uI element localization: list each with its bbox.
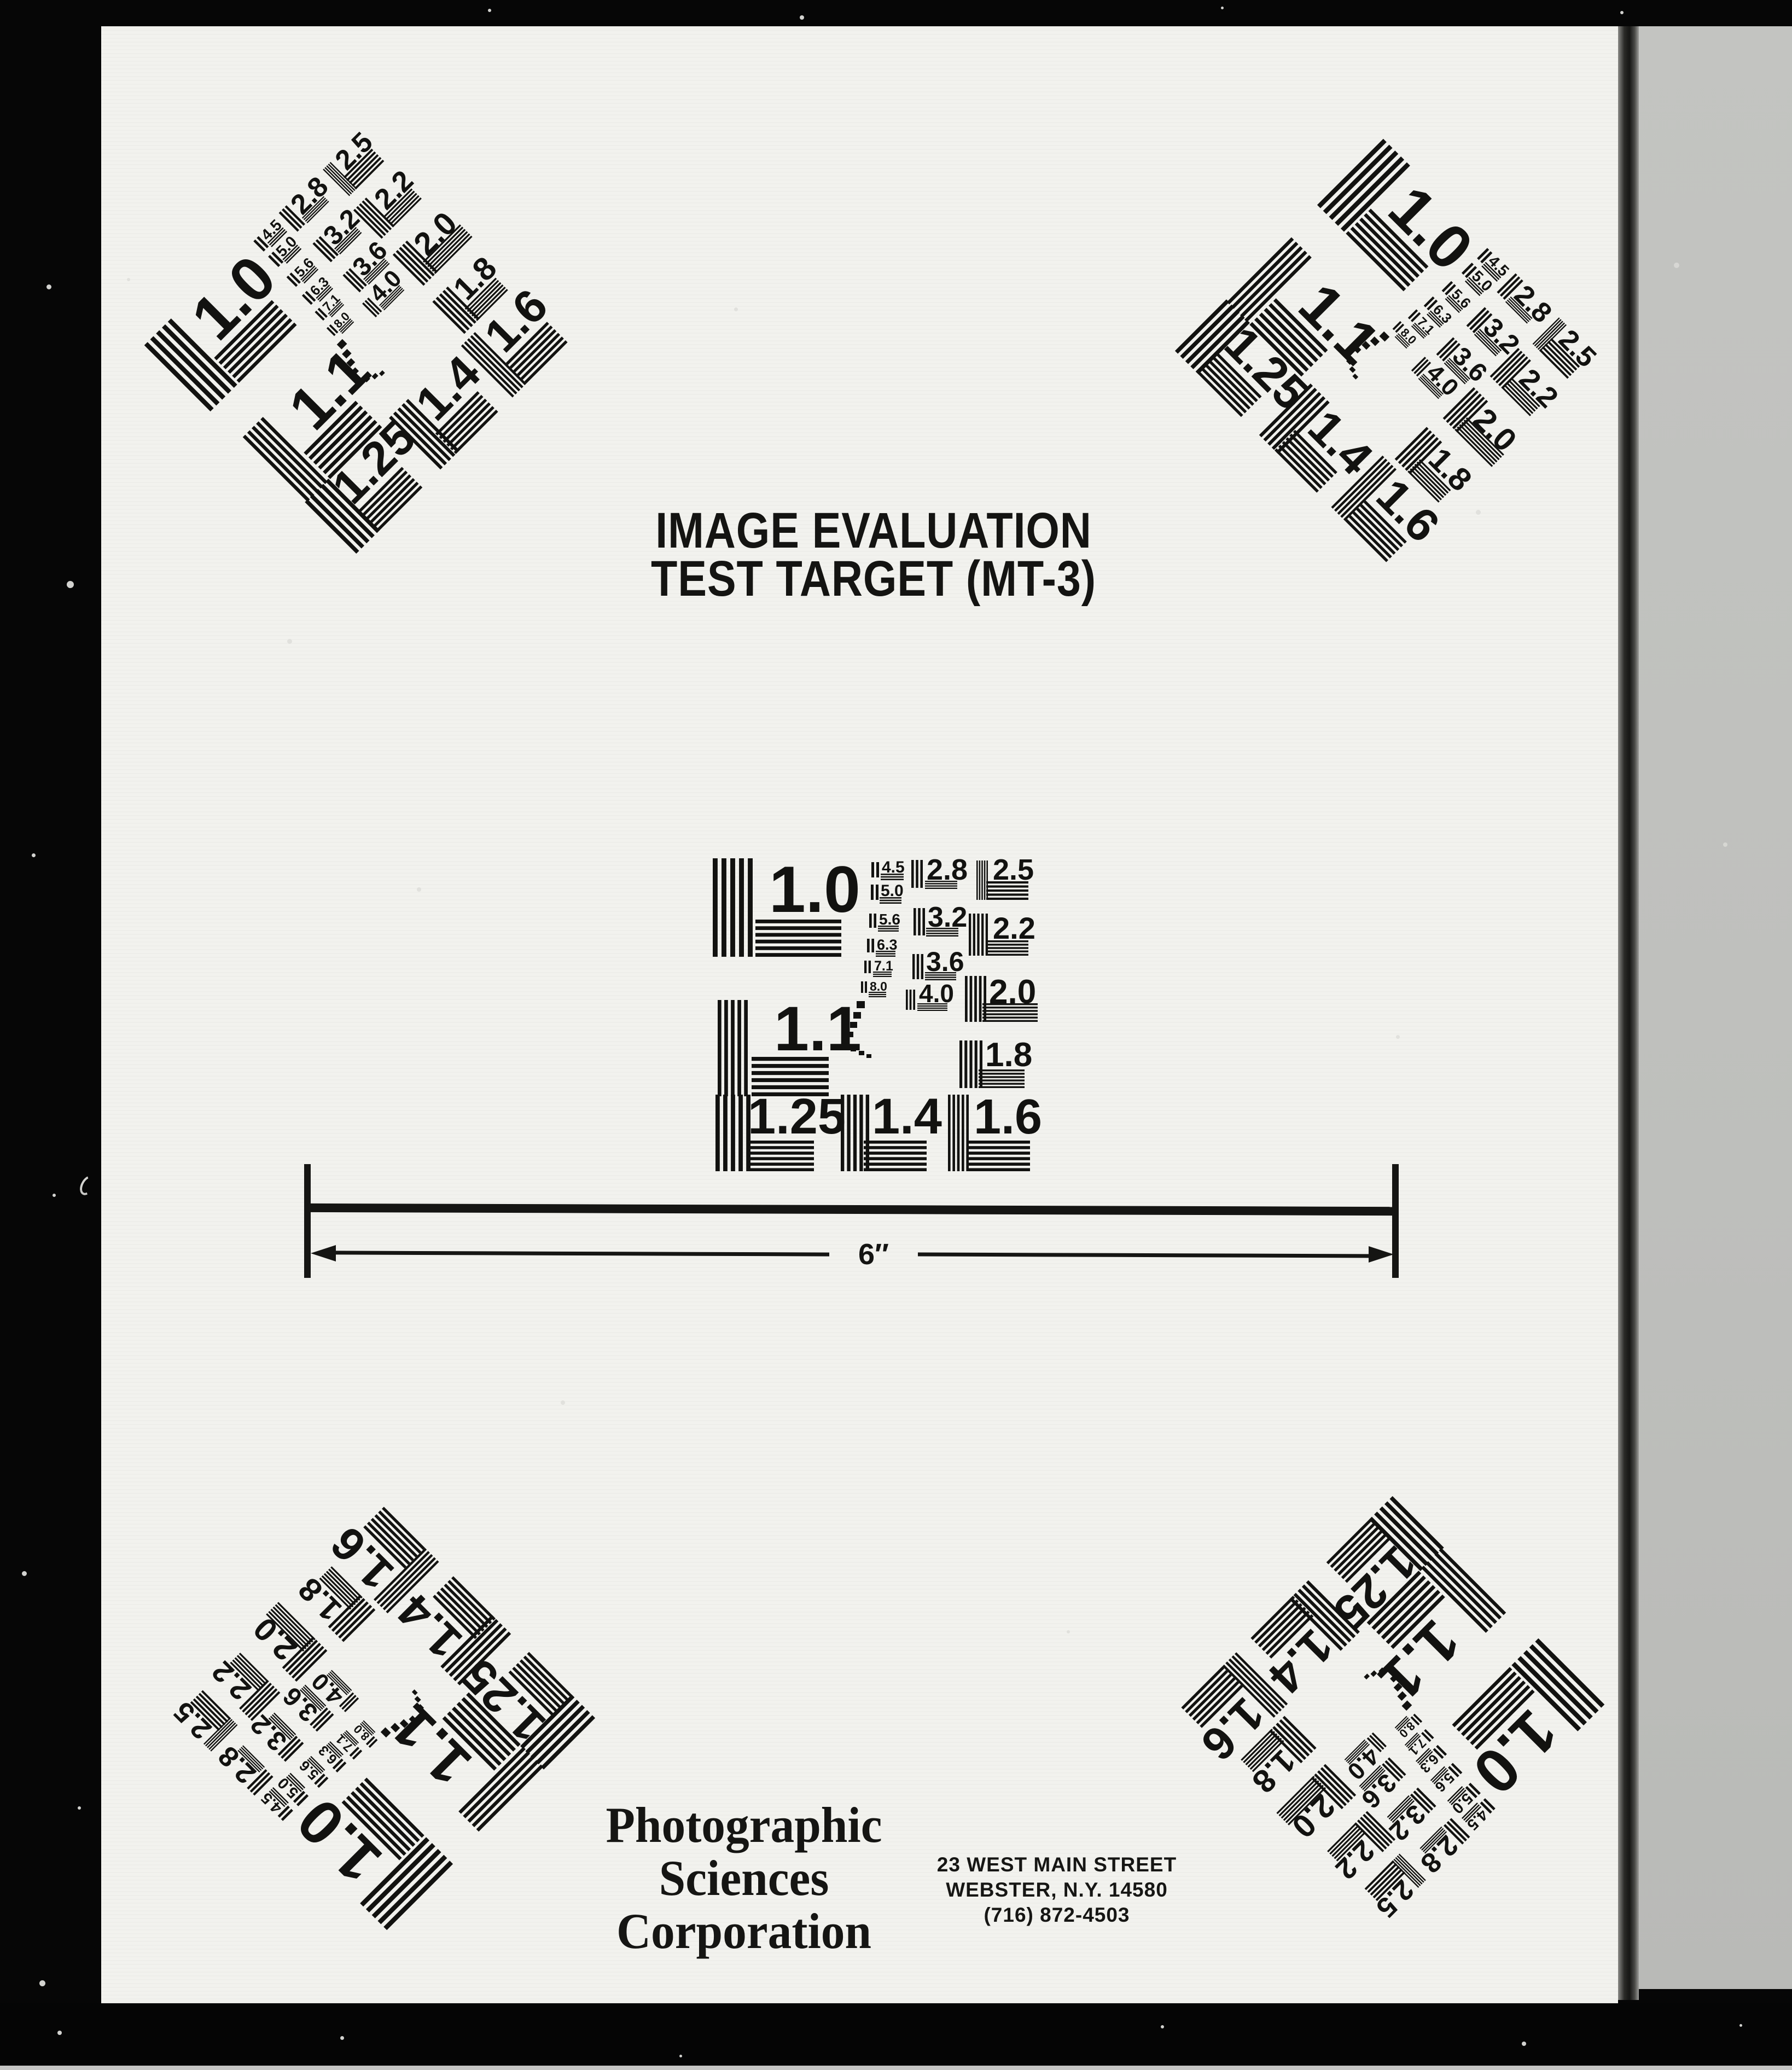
dust-speckle xyxy=(67,581,74,588)
patch-label: 1.1 xyxy=(378,1692,484,1798)
patch-label: 1.1 xyxy=(276,336,382,443)
micro-mark xyxy=(379,370,385,376)
test-pattern-center: 1.01.11.251.41.61.82.02.22.52.83.23.64.0… xyxy=(689,837,1072,1176)
micro-mark xyxy=(857,1001,865,1008)
address-line-1: 23 WEST MAIN STREET xyxy=(920,1852,1194,1877)
dust-speckle xyxy=(1161,2025,1164,2028)
dust-speckle xyxy=(32,853,36,857)
patch-label: 6.3 xyxy=(1417,1751,1441,1776)
scan-border-top xyxy=(0,0,1792,26)
patch-label: 1.1 xyxy=(1366,1607,1473,1713)
pattern-patch-2.5: 2.5 xyxy=(976,853,1034,900)
logo-line-3: Corporation xyxy=(536,1905,952,1958)
patch-label: 6.3 xyxy=(877,937,898,953)
patch-label: 8.0 xyxy=(870,979,887,993)
scan-bottom-edge-line xyxy=(0,2066,1792,2070)
pattern-patch-1.4: 1.4 xyxy=(841,1089,942,1171)
paper-fleck xyxy=(561,1400,565,1405)
micro-mark xyxy=(412,1689,418,1695)
pattern-patch-1.6: 1.6 xyxy=(948,1090,1042,1171)
dust-speckle xyxy=(800,15,804,20)
title-line-2: TEST TARGET (MT-3) xyxy=(638,555,1109,603)
logo-line-1: Photographic xyxy=(536,1799,952,1852)
title-line-1: IMAGE EVALUATION xyxy=(638,507,1109,555)
micro-mark xyxy=(847,1032,853,1037)
patch-label: 5.6 xyxy=(879,911,900,928)
patch-label: 1.1 xyxy=(1286,271,1392,377)
scale-arrowhead-left-icon xyxy=(311,1245,336,1261)
paper-fleck xyxy=(1674,263,1679,268)
scan-border-bottom xyxy=(0,2003,1792,2070)
company-address: 23 WEST MAIN STREET WEBSTER, N.Y. 14580 … xyxy=(920,1852,1194,1928)
patch-label: 6.3 xyxy=(1430,302,1454,327)
pattern-patch-2.2: 2.2 xyxy=(969,911,1035,956)
scale-length-label: 6″ xyxy=(827,1237,920,1271)
paper-fleck xyxy=(1067,1630,1070,1633)
dust-speckle xyxy=(1739,2024,1742,2027)
dust-speckle xyxy=(1620,11,1624,14)
patch-label: 8.0 xyxy=(331,309,352,330)
paper-fleck xyxy=(1396,1035,1400,1039)
scan-border-left xyxy=(0,0,101,2070)
pattern-patch-4.5: 4.5 xyxy=(871,858,905,880)
patch-label: 5.0 xyxy=(881,882,904,900)
dust-speckle xyxy=(57,2031,62,2035)
dust-speckle xyxy=(679,2055,682,2057)
dust-speckle xyxy=(340,2036,344,2040)
patch-label: 3.2 xyxy=(928,902,967,933)
company-logo: Photographic Sciences Corporation xyxy=(536,1799,952,1958)
dust-speckle xyxy=(78,1806,81,1810)
patch-label: 1.25 xyxy=(748,1089,846,1144)
patch-label: 7.1 xyxy=(874,958,893,974)
dust-speckle xyxy=(46,284,51,289)
pattern-patch-1.8: 1.8 xyxy=(959,1036,1032,1088)
patch-label: 6.3 xyxy=(316,1742,340,1767)
micro-mark xyxy=(850,1022,857,1028)
micro-mark xyxy=(853,1012,861,1019)
micro-mark xyxy=(851,1047,856,1051)
pattern-patch-5.6: 5.6 xyxy=(869,911,900,932)
pattern-patch-5.0: 5.0 xyxy=(871,882,904,904)
pattern-patch-7.1: 7.1 xyxy=(864,958,893,977)
patch-label: 2.5 xyxy=(993,853,1034,886)
micro-mark xyxy=(1352,374,1358,380)
address-line-3: (716) 872-4503 xyxy=(920,1903,1194,1928)
dust-speckle xyxy=(53,1194,56,1197)
paper-fleck xyxy=(417,887,421,892)
pattern-patch-1.1: 1.1 xyxy=(718,994,862,1096)
address-line-2: WEBSTER, N.Y. 14580 xyxy=(920,1877,1194,1903)
paper-fleck xyxy=(127,278,130,281)
micro-mark xyxy=(843,1040,850,1045)
patch-label: 1.0 xyxy=(769,853,860,926)
patch-label: 8.0 xyxy=(1398,325,1419,347)
dust-speckle xyxy=(1221,7,1224,9)
patch-label: 8.0 xyxy=(351,1722,372,1743)
dust-speckle xyxy=(1522,2042,1526,2046)
pattern-patch-1.25: 1.25 xyxy=(715,1089,846,1171)
pattern-patch-6.3: 6.3 xyxy=(867,937,898,957)
pattern-patch-1.0: 1.0 xyxy=(713,853,860,957)
patch-label: 2.8 xyxy=(927,853,968,886)
scanned-page: 1.01.11.251.41.61.82.02.22.52.83.23.64.0… xyxy=(0,0,1792,2070)
pattern-patch-8.0: 8.0 xyxy=(861,979,887,997)
patch-label: 1.6 xyxy=(974,1090,1042,1144)
micro-mark xyxy=(866,1054,871,1058)
patch-label: 1.1 xyxy=(774,994,862,1064)
pattern-patch-3.2: 3.2 xyxy=(914,902,967,937)
micro-mark xyxy=(859,1051,864,1055)
patch-label: 1.8 xyxy=(985,1036,1032,1074)
patch-label: 3.6 xyxy=(926,946,964,977)
micro-mark xyxy=(1364,1673,1370,1679)
paper-fleck xyxy=(1476,510,1481,515)
scanner-margin-strip xyxy=(1639,20,1792,1989)
patch-label: 8.0 xyxy=(1397,1719,1418,1741)
pattern-patch-4.0: 4.0 xyxy=(906,979,954,1011)
paper-fleck xyxy=(287,639,292,644)
paper-fleck xyxy=(734,307,738,311)
patch-label: 1.4 xyxy=(872,1089,942,1144)
scale-arrowhead-right-icon xyxy=(1369,1246,1394,1263)
pattern-patch-3.6: 3.6 xyxy=(912,946,964,980)
resolution-chart-svg: 1.01.11.251.41.61.82.02.22.52.83.23.64.0… xyxy=(689,837,1072,1176)
target-title: IMAGE EVALUATION TEST TARGET (MT-3) xyxy=(638,507,1109,603)
pattern-patch-2.0: 2.0 xyxy=(965,973,1038,1022)
patch-label: 4.5 xyxy=(882,858,905,876)
patch-label: 2.0 xyxy=(989,973,1036,1011)
patch-label: 4.0 xyxy=(919,979,954,1008)
paper-fleck xyxy=(1723,842,1727,847)
dust-speckle xyxy=(22,1571,27,1576)
dust-speckle xyxy=(488,9,491,12)
patch-label: 2.2 xyxy=(993,911,1035,945)
dust-speckle xyxy=(39,1980,45,1986)
logo-line-2: Sciences xyxy=(536,1852,952,1905)
page-edge-shadow xyxy=(1618,20,1639,2000)
scale-tick-left xyxy=(304,1164,311,1278)
pattern-patch-2.8: 2.8 xyxy=(911,853,968,889)
